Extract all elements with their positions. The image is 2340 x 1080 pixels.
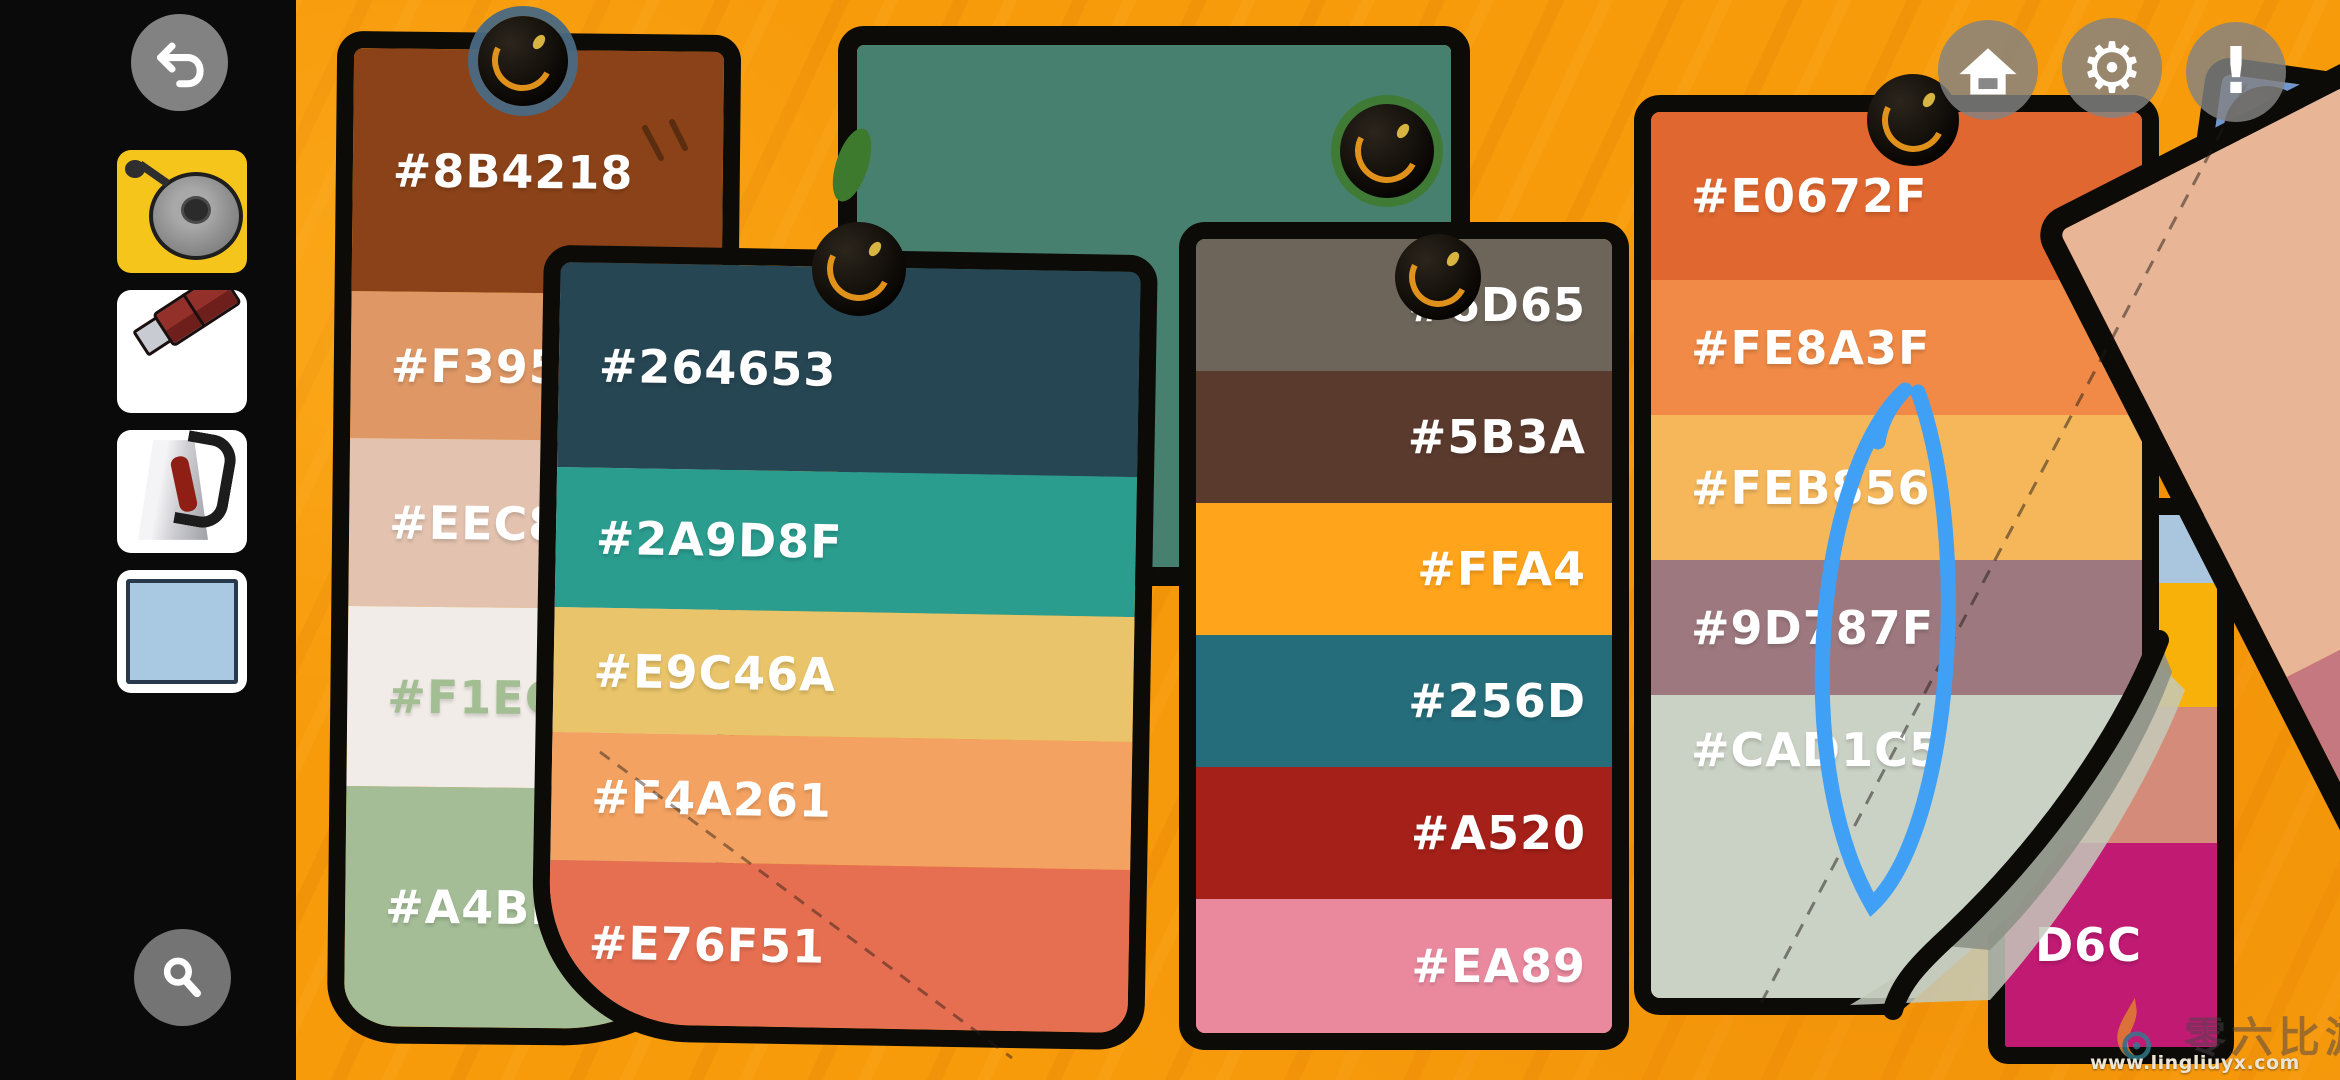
palette-card-2[interactable]: #264653#2A9D8F#E9C46A#F4A261#E76F51 [530, 245, 1158, 1051]
swatch-hex-label: #8B4218 [393, 143, 634, 200]
pin-icon [1395, 234, 1481, 320]
magnifier-icon [154, 949, 212, 1007]
swatch-hex-label: #FEB856 [1691, 461, 1930, 515]
swatch-band[interactable]: #A520 [1196, 767, 1612, 899]
swatch-band[interactable]: #FEB856 [1651, 415, 2142, 560]
swatch-band[interactable]: #5B3A [1196, 371, 1612, 503]
swatch-hex-label: #E76F51 [588, 915, 825, 973]
swatch-band[interactable]: #9D787F [1651, 560, 2142, 695]
vinyl-record-icon [117, 150, 247, 273]
swatch-hex-label: #9D787F [1691, 601, 1934, 655]
pin-icon [1340, 104, 1434, 198]
home-icon [1954, 36, 2022, 104]
swatch-hex-label: #F4A261 [591, 770, 832, 828]
swatch-hex-label: D6C [2035, 918, 2142, 972]
swatch-hex-label: #256D [1408, 674, 1586, 728]
palette-card-3[interactable]: #6D65#5B3A#FFA4#256D#A520#EA89 [1179, 222, 1629, 1050]
swatch-hex-label: #EA89 [1411, 939, 1586, 993]
alert-button[interactable]: ! [2186, 22, 2286, 122]
back-button[interactable] [131, 14, 228, 111]
pin-icon [478, 16, 568, 106]
swatch-hex-label: #E0672F [1691, 169, 1927, 223]
swatch-band[interactable]: #E76F51 [547, 860, 1130, 1033]
swatch-hex-label: #A520 [1411, 806, 1586, 860]
blue-card-icon [126, 579, 238, 684]
sidebar-item-blue-card[interactable] [117, 570, 247, 693]
undo-arrow-icon [149, 32, 211, 94]
pin-icon [812, 222, 906, 316]
kettle-icon [117, 430, 247, 553]
settings-button[interactable]: ⚙ [2062, 18, 2162, 118]
swatch-band[interactable]: #F4A261 [550, 732, 1132, 870]
swatch-band[interactable]: #256D [1196, 635, 1612, 767]
swatch-band[interactable]: #FFA4 [1196, 503, 1612, 635]
sidebar-item-usb-drive[interactable] [117, 290, 247, 413]
sidebar-item-kettle[interactable] [117, 430, 247, 553]
swatch-hex-label: #E9C46A [593, 643, 836, 701]
exclamation-icon: ! [2221, 35, 2250, 109]
swatch-hex-label: #FFA4 [1417, 542, 1586, 596]
swatch-band[interactable]: #2A9D8F [555, 467, 1137, 617]
swatch-hex-label: #FE8A3F [1691, 321, 1930, 375]
swatch-hex-label: #264653 [598, 338, 837, 396]
swatch-band[interactable]: #E9C46A [552, 607, 1134, 742]
swatch-band[interactable]: #EA89 [1196, 899, 1612, 1033]
search-button[interactable] [134, 929, 231, 1026]
sidebar-item-vinyl-record[interactable] [117, 150, 247, 273]
swatch-hex-label: #CAD1C5 [1691, 723, 1942, 777]
swatch-band[interactable]: #FE8A3F [1651, 280, 2142, 415]
swatch-hex-label: #5B3A [1408, 410, 1586, 464]
swatch-hex-label: #2A9D8F [595, 511, 843, 569]
home-button[interactable] [1938, 20, 2038, 120]
gear-icon: ⚙ [2081, 27, 2144, 109]
game-screen: B9D6C #8B4218#F3955#EEC8B#F1ECE8#A4BD96 … [0, 0, 2340, 1080]
